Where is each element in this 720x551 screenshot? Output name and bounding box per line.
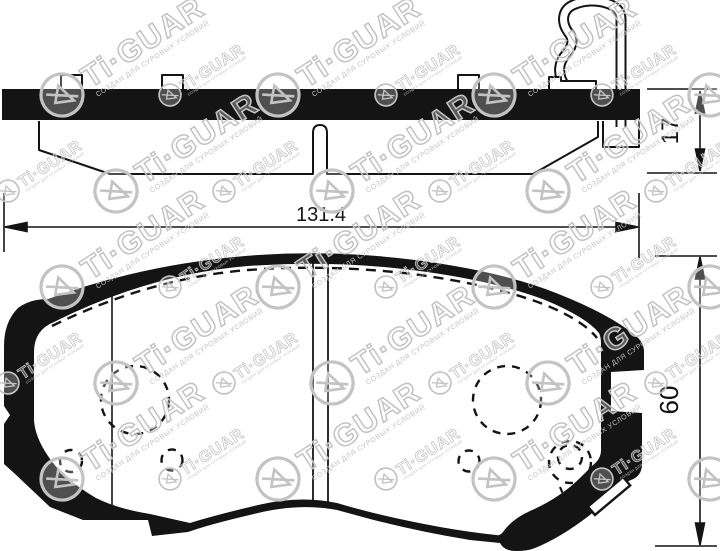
clip-base-plate [549, 77, 596, 90]
dimension-height: 60 [654, 256, 717, 546]
front-view-pad-outline [4, 253, 644, 551]
brake-pad-drawing: 131.4 17 60 [0, 0, 720, 551]
width-arrow-right [616, 223, 638, 232]
plate-lug-3 [458, 75, 479, 90]
dimension-thickness: 17 [647, 89, 717, 173]
dimension-width-label: 131.4 [296, 204, 346, 226]
plate-lug-1 [61, 75, 82, 90]
width-arrow-left [5, 223, 27, 232]
dimension-height-label: 60 [654, 386, 684, 415]
dimension-thickness-label: 17 [657, 118, 684, 145]
friction-material-profile [39, 121, 598, 174]
backplate-edge-bar [2, 89, 640, 120]
top-view-side-profile [2, 1, 640, 174]
plate-lug-2 [162, 75, 183, 90]
pad-friction-face [34, 264, 601, 535]
height-arrow-top [696, 257, 705, 279]
technical-drawing-canvas: 131.4 17 60 Ti·GUARСОЗДАН ДЛЯ [0, 0, 720, 551]
thickness-arrow-top [696, 91, 705, 113]
thickness-arrow-bottom [696, 149, 705, 171]
dimension-width: 131.4 [4, 193, 639, 258]
height-arrow-bottom [696, 523, 705, 545]
